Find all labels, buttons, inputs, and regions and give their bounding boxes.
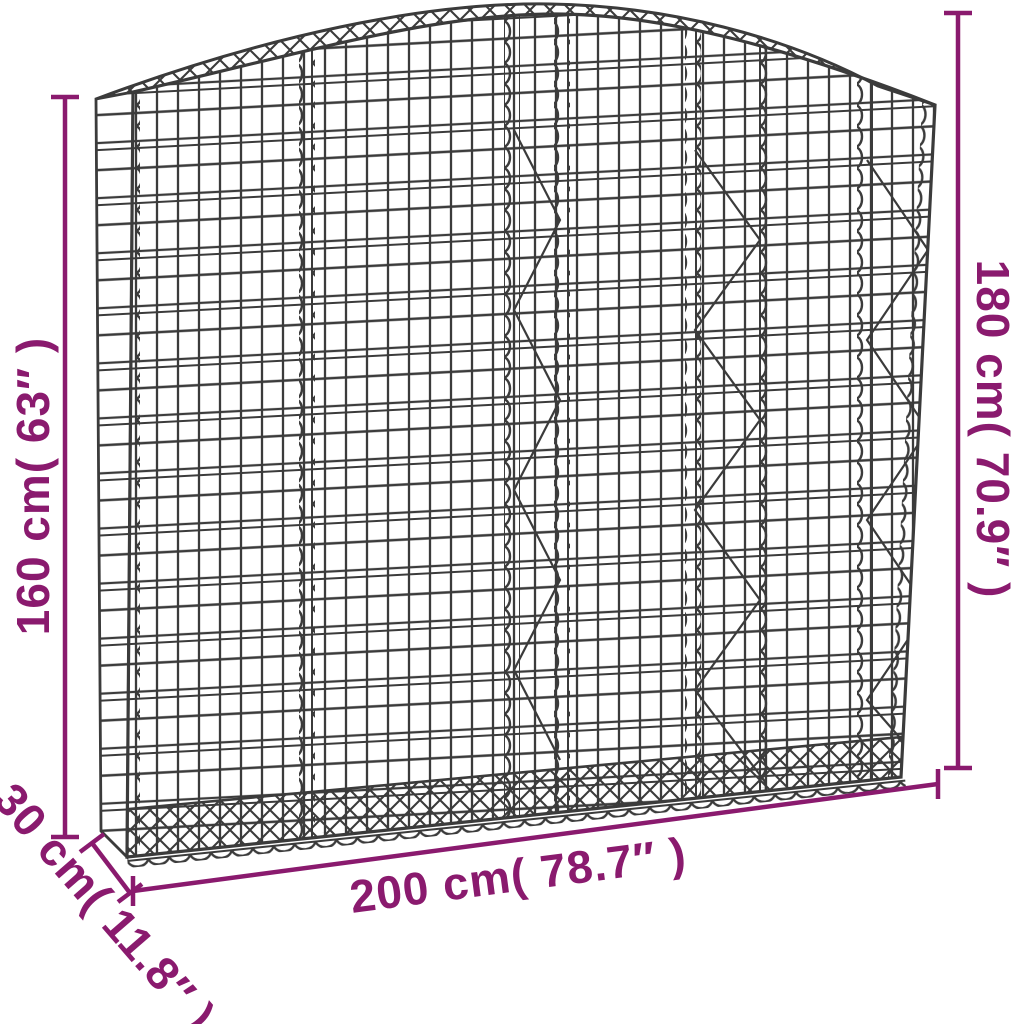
basket-front-face [90,0,960,880]
dimension-line-right-height [944,13,972,768]
product-dimension-diagram: 160 cm( 63″ ) 180 cm( 70.9″ ) 200 cm( 78… [0,0,1024,1024]
dimension-line-left-height [51,97,79,837]
gabion-basket-illustration [0,0,1024,1024]
